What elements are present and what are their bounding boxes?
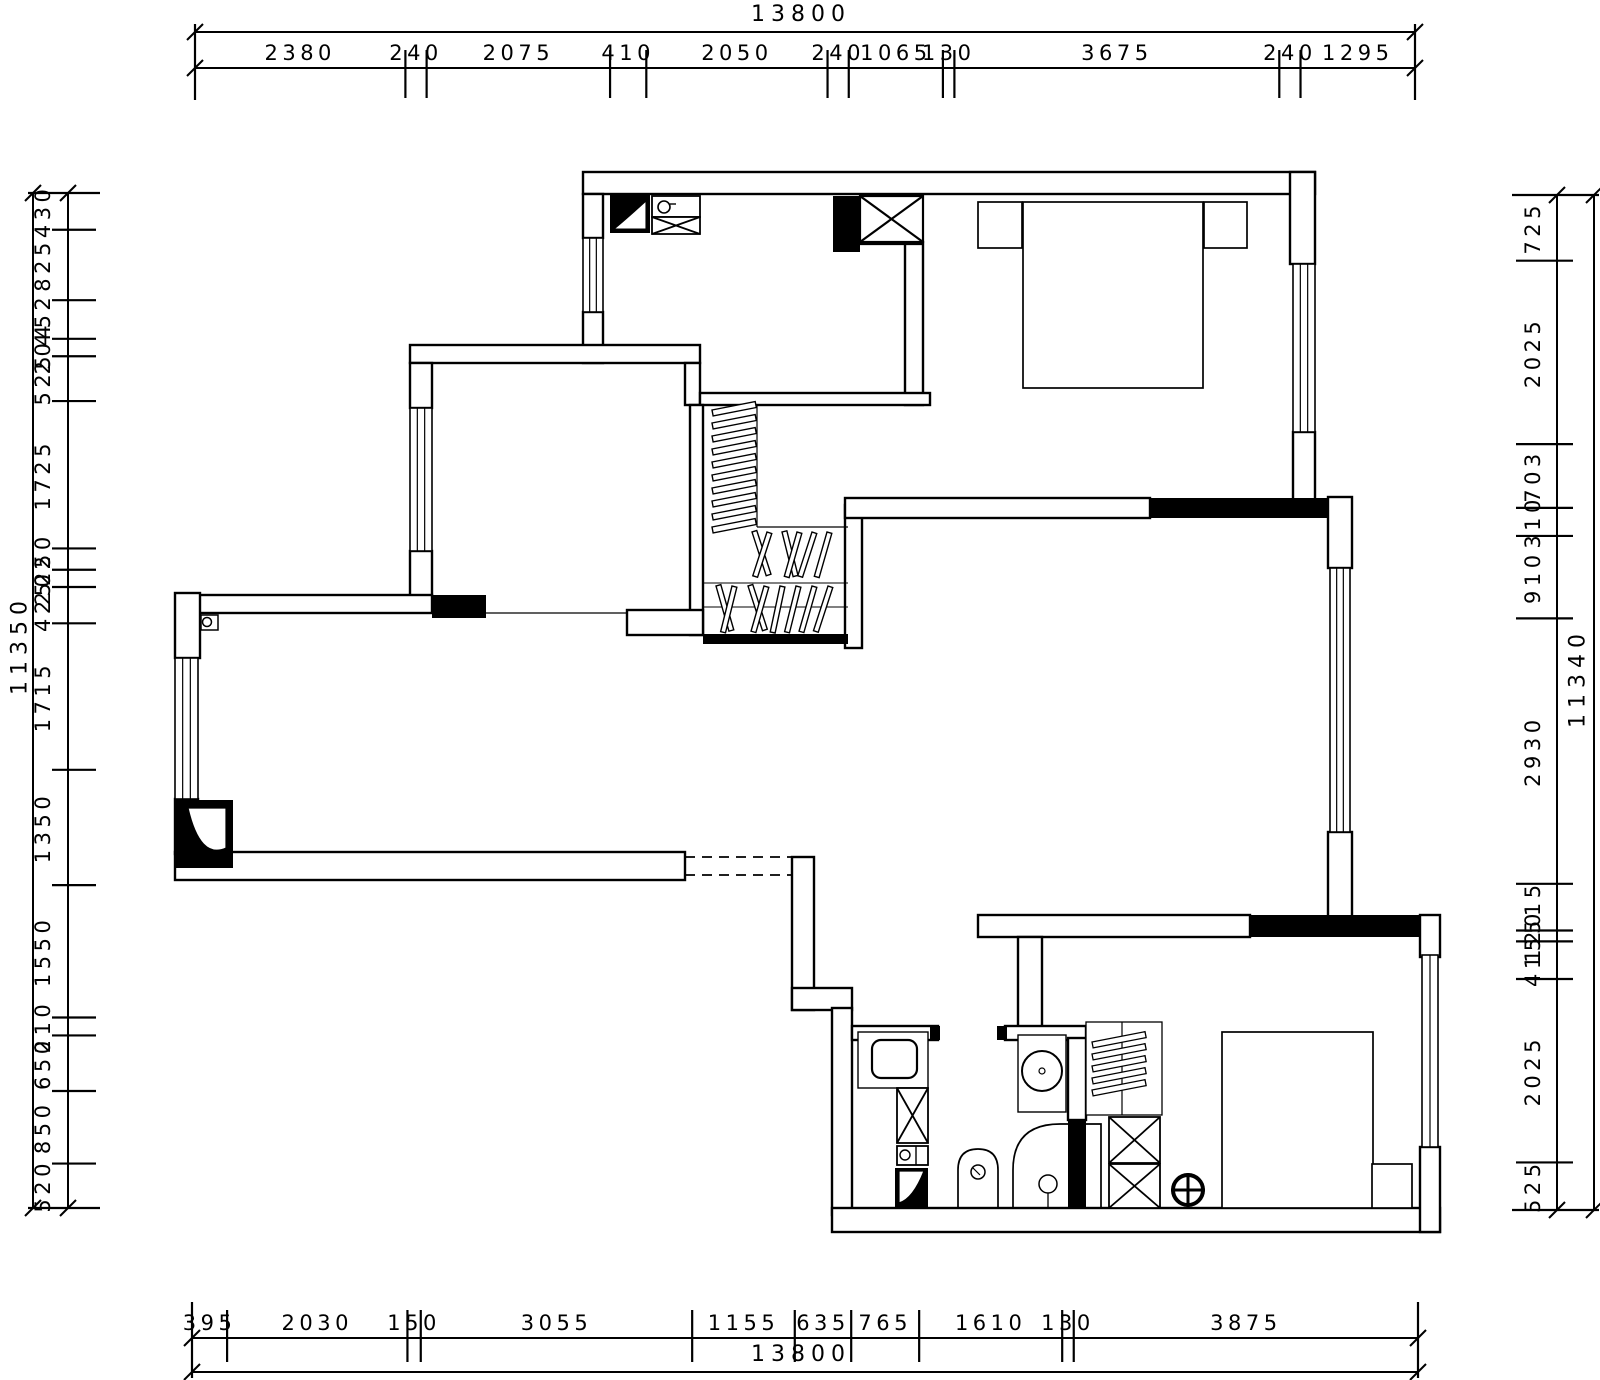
entry-door-icon — [201, 615, 218, 630]
dim-label: 130 — [1041, 1311, 1095, 1335]
dim-label: 3875 — [1210, 1311, 1281, 1335]
nightstand-icon — [1204, 202, 1247, 248]
structural-column — [432, 595, 486, 618]
dim-label: 240 — [811, 41, 865, 65]
window-icon — [175, 658, 198, 799]
structural-column — [997, 1026, 1007, 1040]
dim-label: 2075 — [483, 41, 554, 65]
dashed-opening — [685, 857, 792, 875]
dim-label: 425 — [31, 578, 55, 632]
dim-label: 1610 — [955, 1311, 1026, 1335]
dim-label: 2380 — [264, 41, 335, 65]
dim-label: 1155 — [708, 1311, 779, 1335]
window-icon — [410, 408, 432, 551]
floor-plan-canvas: 2380240207541020502401065130367524012953… — [0, 0, 1600, 1380]
double-bed-icon — [978, 202, 1247, 388]
dim-label: 635 — [796, 1311, 850, 1335]
dim-label: 2030 — [282, 1311, 353, 1335]
window-icon — [583, 238, 603, 312]
top-dimension-ruler: 238024020754102050240106513036752401295 — [187, 24, 1423, 100]
nightstand-icon — [978, 202, 1022, 248]
corner-column-icon — [895, 1168, 928, 1209]
floor-plan-page: 2380240207541020502401065130367524012953… — [0, 0, 1600, 1380]
dim-label: 310 — [1521, 495, 1545, 549]
dim-label: 825 — [31, 238, 55, 292]
dim-label: 3055 — [521, 1311, 592, 1335]
bottom-dimension-ruler: 39520301503055115563576516101303875 — [183, 1302, 1426, 1380]
dim-label: 1295 — [1322, 41, 1393, 65]
washing-machine-icon — [1018, 1035, 1066, 1112]
dim-label: 1550 — [31, 916, 55, 987]
nightstand-icon — [1372, 1164, 1412, 1208]
flue-shaft-icon — [860, 196, 923, 244]
dim-label: 520 — [31, 1159, 55, 1213]
dim-label: 650 — [31, 1036, 55, 1090]
window-icon — [1293, 264, 1315, 432]
bathroom-sink-icon — [858, 1032, 928, 1088]
left-dimension-ruler: 4308254522045251725250202425171513501550… — [25, 185, 100, 1216]
dim-label: 3675 — [1081, 41, 1152, 65]
structural-column — [703, 634, 848, 644]
dim-label: 2050 — [701, 41, 772, 65]
dim-label: 2025 — [1521, 1035, 1545, 1106]
dim-label: 725 — [1521, 201, 1545, 255]
dim-label: 1065 — [860, 41, 931, 65]
dim-label: 1725 — [31, 439, 55, 510]
water-heater-icon — [897, 1146, 928, 1165]
structural-column — [833, 196, 860, 252]
window-icon — [1422, 955, 1438, 1147]
shower-icon — [1013, 1124, 1101, 1208]
dim-label: 2025 — [1521, 317, 1545, 388]
kitchen-appliance-icon — [652, 196, 700, 234]
dim-label: 395 — [183, 1311, 237, 1335]
structural-column — [1068, 1120, 1086, 1208]
dim-label: 415 — [1521, 933, 1545, 987]
dim-label: 240 — [389, 41, 443, 65]
dim-label: 525 — [1521, 1159, 1545, 1213]
corner-column-icon — [175, 800, 233, 868]
dim-label: 240 — [1263, 41, 1317, 65]
wardrobe-hangers-icon — [1086, 1022, 1162, 1115]
structural-column — [930, 1026, 940, 1040]
right-total-dimension: 11340 — [1566, 628, 1591, 728]
dim-label: 703 — [1521, 449, 1545, 503]
dim-label: 1715 — [31, 661, 55, 732]
dim-label: 910 — [1521, 550, 1545, 604]
duct-shaft-icon — [1109, 1117, 1160, 1208]
single-bed-icon — [1222, 1032, 1412, 1208]
structural-column — [1250, 915, 1420, 937]
floor-drain-icon — [1171, 1173, 1205, 1207]
duct-shaft-icon — [897, 1088, 928, 1143]
window-icon — [1330, 568, 1350, 832]
dim-label: 2930 — [1521, 715, 1545, 786]
dim-label: 765 — [858, 1311, 912, 1335]
refrigerator-icon — [610, 194, 650, 233]
dim-label: 130 — [922, 41, 976, 65]
furniture — [201, 194, 1412, 1208]
dim-label: 410 — [601, 41, 655, 65]
bottom-total-dimension: 13800 — [751, 1342, 851, 1367]
structural-column — [1150, 498, 1328, 518]
dim-label: 150 — [387, 1311, 441, 1335]
top-total-dimension: 13800 — [751, 2, 851, 27]
toilet-icon — [958, 1149, 998, 1208]
dim-label: 430 — [31, 185, 55, 239]
dim-label: 525 — [31, 352, 55, 406]
walkin-closet-hangers-icon — [712, 402, 833, 633]
left-total-dimension: 11350 — [8, 595, 33, 695]
dim-label: 1350 — [31, 792, 55, 863]
dim-label: 850 — [31, 1100, 55, 1154]
